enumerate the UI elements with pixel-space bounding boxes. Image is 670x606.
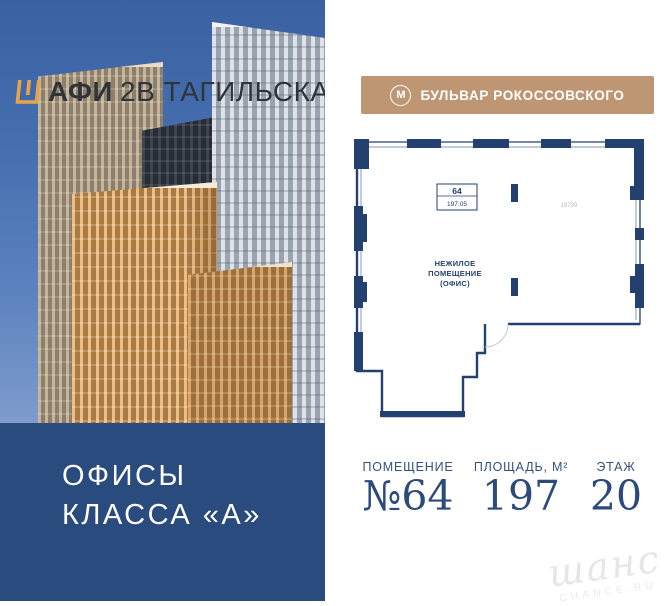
metro-icon: М	[390, 85, 411, 106]
floor-plan: 64 197.05 НЕЖИЛОЕ ПОМЕЩЕНИЕ (ОФИС) 19739	[353, 138, 645, 460]
plan-unit-area: 197.05	[447, 201, 467, 208]
plan-dimension-label: 19739	[561, 203, 578, 209]
building-tower-gold-right	[188, 262, 292, 423]
afi-logo-icon	[14, 78, 42, 106]
metro-station-label: БУЛЬВАР РОКОССОВСКОГО	[420, 88, 624, 103]
offices-banner: ОФИСЫ КЛАССА «А»	[0, 423, 325, 601]
detail-floor: ЭТАЖ 20	[576, 460, 656, 518]
offices-line2: КЛАССА «А»	[62, 496, 262, 535]
brand-logo: АФИ2В ТАГИЛЬСКАЯ	[14, 76, 325, 108]
building-photo: АФИ2В ТАГИЛЬСКАЯ	[0, 0, 325, 423]
plan-room-label-line2: ПОМЕЩЕНИЕ	[428, 269, 482, 278]
detail-room: ПОМЕЩЕНИЕ №64	[353, 460, 463, 518]
detail-area-value: 197	[471, 475, 571, 518]
floor-plan-drawing: 64 197.05 НЕЖИЛОЕ ПОМЕЩЕНИЕ (ОФИС) 19739	[353, 138, 645, 460]
plan-room-label-line1: НЕЖИЛОЕ	[435, 259, 476, 268]
offices-class-title: ОФИСЫ КЛАССА «А»	[62, 457, 262, 535]
unit-details-row: ПОМЕЩЕНИЕ №64 ПЛОЩАДЬ, М² 197 ЭТАЖ 20	[325, 460, 670, 530]
plan-glazing-inner-line	[361, 147, 636, 367]
offices-line1: ОФИСЫ	[62, 457, 262, 496]
flyer-page: АФИ2В ТАГИЛЬСКАЯ ОФИСЫ КЛАССА «А» М БУЛЬ…	[0, 0, 670, 606]
plan-unit-box: 64 197.05	[437, 184, 477, 210]
right-column: М БУЛЬВАР РОКОССОВСКОГО	[325, 0, 670, 606]
detail-area: ПЛОЩАДЬ, М² 197	[471, 460, 571, 518]
brand-name-rest: 2В ТАГИЛЬСКАЯ	[120, 76, 325, 107]
plan-room-label: НЕЖИЛОЕ ПОМЕЩЕНИЕ (ОФИС)	[428, 259, 482, 288]
plan-room-label-line3: (ОФИС)	[440, 279, 470, 288]
door-swing-arc	[485, 324, 508, 347]
metro-banner: М БУЛЬВАР РОКОССОВСКОГО	[361, 76, 654, 114]
detail-floor-value: 20	[576, 475, 656, 518]
plan-interior-columns	[511, 184, 518, 296]
plan-wall-piers	[354, 139, 644, 417]
brand-name: АФИ2В ТАГИЛЬСКАЯ	[48, 76, 325, 108]
plan-unit-number: 64	[452, 186, 462, 196]
watermark: шанс CHANCE.RU	[546, 541, 665, 605]
plan-outline-top-right	[357, 142, 640, 324]
detail-room-value: №64	[353, 475, 463, 518]
left-column: АФИ2В ТАГИЛЬСКАЯ ОФИСЫ КЛАССА «А»	[0, 0, 325, 606]
brand-name-bold: АФИ	[48, 76, 113, 107]
